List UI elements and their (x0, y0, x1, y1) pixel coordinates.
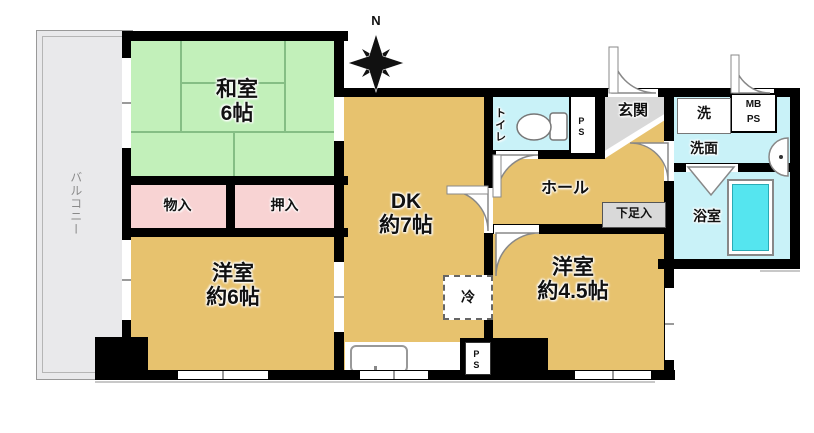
door-gap-toilet (496, 151, 538, 159)
door-gap-bath-folding (686, 164, 738, 172)
room-hall-label: ホール (505, 180, 625, 198)
window-tick (393, 371, 395, 379)
mb-label: MB (730, 97, 777, 112)
door-arc-genkan (612, 49, 656, 93)
room-name: DK (346, 190, 466, 214)
compass-cardinal-star (348, 34, 404, 92)
room-washitsu-label: 和室 6帖 (177, 78, 297, 126)
floor-plan: N バルコニー 和室 6帖 DK 約7帖 洋室 約6帖 洋室 約4.5帖 ホール… (0, 0, 814, 433)
wall-exterior-right (790, 93, 800, 268)
room-bathroom-label: 浴室 (676, 208, 738, 224)
door-leaf-genkan (609, 47, 618, 93)
wall-bath-bottom (658, 259, 800, 269)
door-gap-washroom (664, 141, 674, 181)
window-tick (122, 279, 131, 281)
wall-closet-bottom (122, 228, 348, 237)
wall-dk-right (484, 88, 493, 380)
window-tick (122, 102, 131, 104)
room-size: 6帖 (177, 102, 297, 126)
room-name: 和室 (177, 78, 297, 102)
room-toilet-label: トイレ (493, 99, 506, 151)
window-tick (222, 371, 224, 379)
ps-label: PS (730, 112, 777, 127)
room-name: 洋室 (153, 262, 313, 286)
sliding-door-tick (334, 296, 344, 298)
washer-label: 洗 (677, 105, 731, 121)
pillar-southwest (95, 337, 148, 378)
room-western45-label: 洋室 約4.5帖 (483, 256, 663, 304)
compass-north-label: N (366, 14, 386, 29)
fridge-label: 冷 (443, 289, 493, 305)
room-size: 約7帖 (346, 214, 466, 238)
ps-top-label: PS (576, 107, 586, 147)
exterior-sill-line (760, 270, 800, 272)
door-gap-western45 (494, 225, 539, 234)
compass-diagonal-star (362, 49, 390, 77)
room-genkan-label: 玄関 (604, 102, 662, 119)
room-dk-label: DK 約7帖 (346, 190, 466, 238)
door-gap-genkan (608, 89, 658, 97)
room-storage-label: 物入 (126, 197, 229, 213)
tatami-line (126, 131, 338, 133)
room-western6-label: 洋室 約6帖 (153, 262, 313, 310)
opening-washitsu-dk (334, 97, 344, 141)
window-tick (612, 371, 614, 379)
room-name: 洋室 (483, 256, 663, 280)
ps-bottom-label: PS (471, 346, 481, 374)
mb-ps-label: MB PS (730, 97, 777, 127)
room-size: 約6帖 (153, 286, 313, 310)
exterior-sill-line (95, 381, 655, 383)
room-size: 約4.5帖 (483, 280, 663, 304)
shoe-cabinet-label: 下足入 (602, 207, 666, 221)
balcony-label: バルコニー (68, 148, 82, 258)
tatami-line (233, 131, 235, 180)
wall-washitsu-top (122, 31, 348, 41)
room-closet-label: 押入 (231, 197, 338, 213)
wall-washitsu-bottom (122, 176, 348, 185)
kitchen-sink (350, 345, 408, 373)
window-tick (665, 323, 674, 325)
room-washroom-label: 洗面 (674, 140, 734, 156)
door-gap-dk (484, 188, 493, 233)
balcony-inner-line (42, 36, 126, 373)
